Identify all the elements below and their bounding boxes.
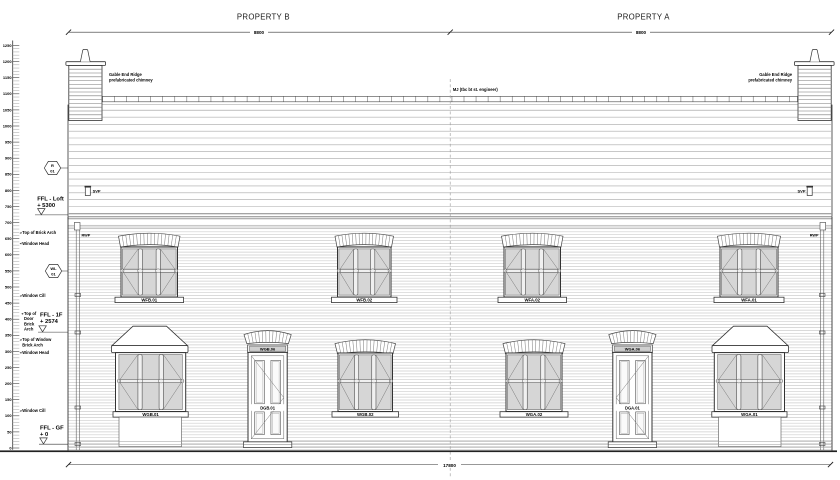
svg-text:150: 150 [5, 397, 12, 402]
svg-text:WGA.02: WGA.02 [526, 412, 543, 417]
svg-text:Gable End Ridge: Gable End Ridge [109, 72, 142, 77]
svg-text:1100: 1100 [3, 91, 12, 96]
svg-text:900: 900 [5, 156, 12, 161]
svg-text:600: 600 [5, 252, 12, 257]
svg-text:950: 950 [5, 140, 12, 145]
svg-text:FFL - 1F: FFL - 1F [40, 313, 63, 319]
svg-text:01: 01 [50, 169, 55, 174]
svg-text:1200: 1200 [3, 59, 13, 64]
svg-text:WFA.02: WFA.02 [524, 298, 540, 303]
svg-text:FFL - Loft: FFL - Loft [37, 197, 64, 203]
svg-text:DGA.01: DGA.01 [625, 405, 641, 410]
svg-text:Gable End Ridge: Gable End Ridge [759, 72, 792, 77]
svg-text:800: 800 [5, 188, 12, 193]
svg-text:DGB.01: DGB.01 [260, 405, 276, 410]
svg-text:R: R [51, 163, 54, 168]
svg-text:200: 200 [5, 381, 12, 386]
svg-text:WFA.01: WFA.01 [741, 298, 757, 303]
svg-text:Window Cill: Window Cill [22, 408, 45, 413]
svg-text:Arch: Arch [24, 327, 34, 332]
svg-text:350: 350 [5, 333, 12, 338]
svg-text:WGB.06: WGB.06 [260, 346, 276, 351]
svg-text:8800: 8800 [254, 30, 265, 35]
svg-text:Brick Arch: Brick Arch [22, 342, 43, 347]
svg-text:450: 450 [5, 301, 12, 306]
svg-text:RWP: RWP [810, 233, 819, 237]
svg-text:SVP: SVP [797, 189, 805, 194]
svg-text:Window Cill: Window Cill [22, 293, 45, 298]
svg-text:WGB.02: WGB.02 [357, 412, 374, 417]
svg-text:850: 850 [5, 172, 12, 177]
svg-text:RWP: RWP [82, 233, 91, 237]
svg-text:Window Head: Window Head [22, 241, 49, 246]
svg-text:300: 300 [5, 349, 12, 354]
svg-text:FFL - GF: FFL - GF [40, 426, 64, 432]
svg-text:1000: 1000 [3, 123, 13, 128]
svg-text:500: 500 [5, 284, 12, 289]
svg-text:1250: 1250 [3, 43, 13, 48]
svg-text:Window Head: Window Head [22, 350, 49, 355]
svg-text:550: 550 [5, 268, 12, 273]
svg-text:+ 0: + 0 [40, 432, 48, 438]
svg-text:SVP: SVP [93, 189, 101, 194]
svg-text:+ 2574: + 2574 [40, 319, 59, 325]
svg-text:50: 50 [7, 429, 12, 434]
svg-text:650: 650 [5, 236, 12, 241]
svg-text:WGA.06: WGA.06 [625, 346, 641, 351]
svg-text:PROPERTY B: PROPERTY B [237, 13, 290, 22]
svg-text:01: 01 [51, 272, 56, 277]
svg-text:8800: 8800 [636, 30, 647, 35]
svg-text:MJ (tbc bt st. engineer): MJ (tbc bt st. engineer) [453, 87, 498, 92]
svg-text:400: 400 [5, 317, 12, 322]
svg-text:WFB.02: WFB.02 [356, 298, 372, 303]
svg-text:WGB.01: WGB.01 [142, 412, 159, 417]
svg-text:WFB.01: WFB.01 [141, 298, 157, 303]
svg-text:WGA.01: WGA.01 [741, 412, 758, 417]
svg-text:prefabricated chimney: prefabricated chimney [109, 78, 153, 83]
svg-text:250: 250 [5, 365, 12, 370]
svg-text:1150: 1150 [3, 75, 12, 80]
svg-text:1050: 1050 [3, 107, 13, 112]
svg-text:750: 750 [5, 204, 12, 209]
svg-text:17800: 17800 [443, 463, 456, 468]
svg-text:prefabricated chimney: prefabricated chimney [748, 78, 792, 83]
svg-text:WL: WL [50, 266, 57, 271]
svg-text:Top of Brick Arch: Top of Brick Arch [22, 230, 56, 235]
svg-text:700: 700 [5, 220, 12, 225]
svg-text:PROPERTY A: PROPERTY A [617, 13, 670, 22]
svg-text:100: 100 [5, 413, 12, 418]
